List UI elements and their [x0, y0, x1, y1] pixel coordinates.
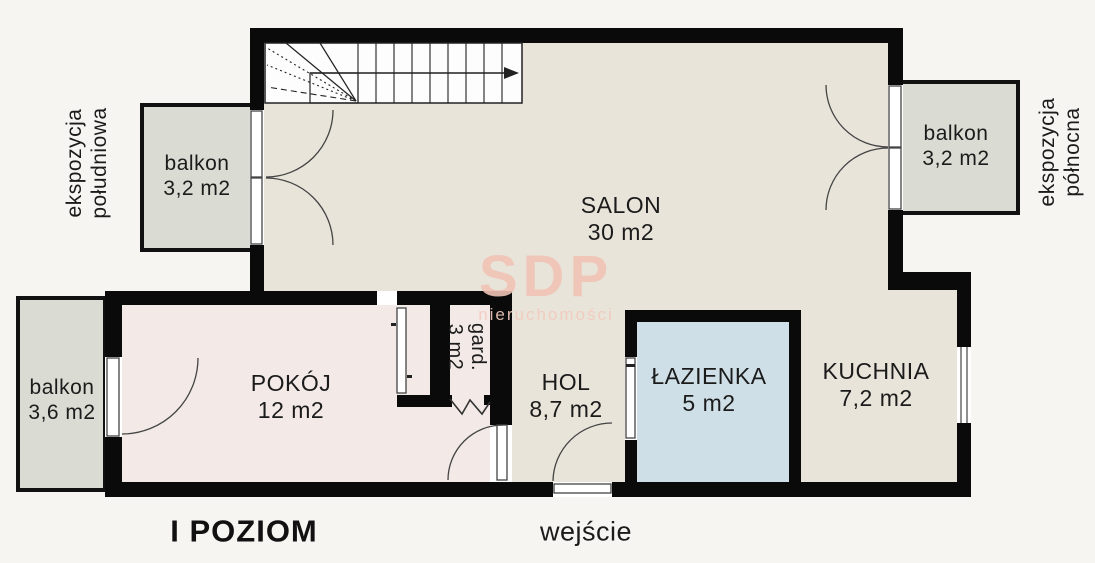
room-area: 7,2 m2	[822, 385, 929, 412]
staircase	[265, 43, 522, 103]
balcony-south-door-leaf-bottom	[251, 178, 262, 244]
room-label-kuchnia: KUCHNIA 7,2 m2	[822, 358, 929, 412]
balcony-name: balkon	[163, 151, 230, 176]
room-name: ŁAZIENKA	[651, 363, 766, 390]
sliding-panel-leaf	[397, 308, 406, 393]
balcony-name: balkon	[922, 121, 989, 146]
room-area: 8,7 m2	[529, 396, 602, 423]
room-name: KUCHNIA	[822, 358, 929, 385]
balcony-label-west: balkon 3,6 m2	[28, 375, 95, 425]
balcony-label-north: balkon 3,2 m2	[922, 121, 989, 171]
room-area: 3 m2	[443, 323, 466, 371]
room-label-pokoj: POKÓJ 12 m2	[251, 370, 331, 424]
room-area: 5 m2	[651, 390, 766, 417]
balcony-south-door-leaf-top	[251, 111, 262, 177]
room-label-hol: HOL 8,7 m2	[529, 369, 602, 423]
exposure-label-north: ekspozycja północna	[1035, 98, 1085, 207]
entrance-label: wejście	[540, 519, 632, 546]
balcony-area: 3,2 m2	[922, 146, 989, 171]
floor-plan: SDP nieruchomości SALON 30 m2 POKÓJ 12 m…	[0, 0, 1095, 563]
floor-plan-drawing	[0, 0, 1095, 563]
exposure-label-south: ekspozycja południowa	[62, 107, 112, 218]
room-label-lazienka: ŁAZIENKA 5 m2	[651, 363, 766, 417]
room-area: 30 m2	[581, 219, 661, 246]
pokoj-door-leaf	[497, 425, 507, 480]
room-area: 12 m2	[251, 397, 331, 424]
balcony-name: balkon	[28, 375, 95, 400]
balcony-north-door-leaf-bottom	[889, 148, 901, 209]
balcony-west-door-leaf	[107, 358, 119, 436]
room-label-salon: SALON 30 m2	[581, 192, 661, 246]
floor-title: I POZIOM	[170, 518, 318, 545]
balcony-area: 3,6 m2	[28, 400, 95, 425]
balcony-label-south: balkon 3,2 m2	[163, 151, 230, 201]
room-name: HOL	[529, 369, 602, 396]
room-label-garderoba: gard. 3 m2	[443, 323, 489, 371]
entrance-door-leaf	[554, 484, 611, 493]
room-name: POKÓJ	[251, 370, 331, 397]
room-name: SALON	[581, 192, 661, 219]
room-name: gard.	[466, 323, 489, 371]
balcony-north-door-leaf-top	[889, 86, 901, 147]
balcony-area: 3,2 m2	[163, 176, 230, 201]
bathroom-sliding-door-leaf	[626, 358, 635, 438]
